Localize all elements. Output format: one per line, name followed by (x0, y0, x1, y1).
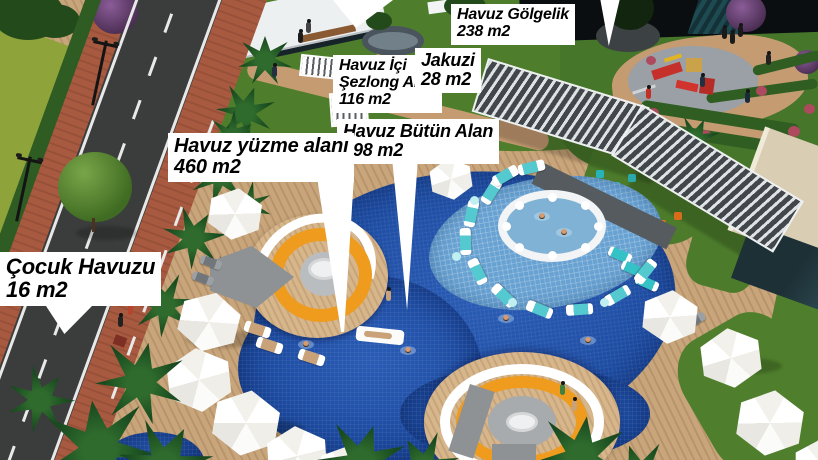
pool-side-table (600, 298, 609, 307)
swimmer (400, 346, 416, 355)
round-tree (58, 152, 132, 222)
person (560, 384, 565, 395)
person (272, 66, 277, 77)
person (118, 316, 123, 327)
person (745, 92, 750, 103)
callout-cocuk-havuzu: Çocuk Havuzu 16 m2 (0, 252, 161, 306)
person (766, 54, 771, 65)
callout-jakuzi: Jakuzi 28 m2 (415, 48, 481, 93)
flower-bush (756, 86, 767, 96)
swimmer (298, 340, 314, 349)
playground-tower (686, 58, 702, 72)
pool-side-table (452, 252, 461, 261)
pool-side-table (470, 196, 479, 205)
tree-trunk (92, 218, 95, 232)
callout-havuz-yuzme-alani: Havuz yüzme alanı 460 m2 (168, 133, 354, 182)
resort-aerial-render: Havuz Gölgelik 238 m2 Havuz İçi Şezlong … (0, 0, 818, 460)
tree-shadow (76, 226, 138, 240)
round-table (506, 412, 538, 432)
person (738, 26, 743, 37)
sun-lounger (566, 303, 594, 316)
person (700, 76, 705, 87)
callout-havuz-butun-alan: Havuz Bütün Alan 98 m2 (337, 119, 499, 164)
swimmer (534, 212, 550, 221)
person (730, 33, 735, 44)
platform-stem (492, 444, 536, 460)
callout-line: 28 m2 (421, 70, 475, 89)
jacuzzi-stool-ring (548, 222, 557, 231)
person (646, 88, 651, 99)
swimmer (580, 336, 596, 345)
person (722, 28, 727, 39)
person (386, 290, 391, 301)
swimmer (498, 314, 514, 323)
callout-line: 460 m2 (174, 157, 348, 178)
teal-chair (628, 174, 636, 182)
callout-havuz-golgelik: Havuz Gölgelik 238 m2 (451, 4, 575, 45)
callout-line: Havuz Gölgelik (457, 7, 569, 24)
callout-line: Havuz Bütün Alan (343, 122, 493, 141)
swimmer (556, 228, 572, 237)
callout-line: 116 m2 (339, 92, 436, 109)
callout-line: Jakuzi (421, 51, 475, 70)
person (128, 304, 133, 315)
callout-line: 16 m2 (6, 278, 155, 301)
pool-side-table (508, 298, 517, 307)
flower-bush (646, 56, 656, 65)
callout-line: 238 m2 (457, 24, 569, 41)
person (306, 22, 311, 33)
person (572, 400, 577, 411)
callout-line: Çocuk Havuzu (6, 255, 155, 278)
person (298, 32, 303, 43)
flower-bush (804, 104, 815, 114)
sun-lounger (460, 228, 472, 255)
callout-line: 98 m2 (343, 141, 493, 160)
orange-chair (674, 212, 682, 220)
callout-line: Havuz yüzme alanı (174, 136, 348, 157)
